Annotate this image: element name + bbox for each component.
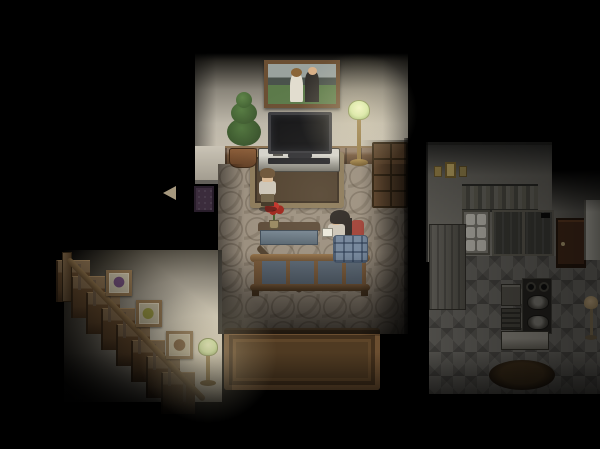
painting-woman-hair <box>291 68 302 77</box>
dish <box>466 214 475 225</box>
dvd-player-slot <box>268 158 330 164</box>
left-arrow-event-icon[interactable] <box>163 186 176 200</box>
lower-grill-cabinet <box>501 308 521 330</box>
girl-hair <box>330 210 350 224</box>
lamp-base <box>200 380 216 386</box>
wall-deco-frame <box>459 166 467 177</box>
wooden-door[interactable] <box>556 218 586 268</box>
picture-frame-teddy-bear <box>166 331 193 359</box>
plant-pot <box>229 148 257 168</box>
frame-art-teddy <box>170 335 189 355</box>
bed-leg-right <box>361 290 368 296</box>
sofa-seat <box>260 230 318 245</box>
boy-shirt <box>259 181 276 195</box>
wood-dresser <box>372 142 408 208</box>
dish <box>477 240 486 251</box>
frame-art-yellow <box>140 304 158 323</box>
cooking-pot <box>527 295 549 310</box>
white-book <box>322 228 333 237</box>
bedroom-floor-lamp <box>346 100 372 168</box>
flat-screen-tv[interactable] <box>268 112 332 154</box>
lamp-base <box>585 335 597 340</box>
door-knob <box>561 242 565 246</box>
character-boy-standing[interactable] <box>256 168 280 212</box>
frame-art-purple <box>110 274 128 292</box>
kitchen-counter <box>501 331 549 350</box>
cooking-pot <box>527 315 549 330</box>
bed-blue-panels <box>254 261 366 285</box>
picture-frame-yellow-flower <box>136 300 162 327</box>
lamp-pole <box>206 355 210 381</box>
plant-foliage-top <box>236 92 252 108</box>
tv-base <box>288 153 312 158</box>
picture-frame-purple-flower <box>106 270 132 296</box>
character-girl-reading[interactable] <box>322 206 370 264</box>
doormat <box>194 186 214 212</box>
stove-burner <box>539 282 549 292</box>
dish <box>466 227 475 238</box>
stove-with-pots <box>522 278 552 334</box>
game-viewport <box>0 0 600 449</box>
lamp-shade <box>584 296 598 309</box>
bed-bottom-rail <box>250 284 370 291</box>
boy-shadow <box>259 206 277 212</box>
large-wood-table <box>224 328 380 390</box>
round-dark-table <box>489 360 555 390</box>
lamp-shade <box>198 338 218 356</box>
tall-gray-cabinet <box>429 224 466 310</box>
kitchen-wall-decorations <box>434 162 468 182</box>
china-hutch <box>492 210 554 256</box>
painting-man-head <box>308 67 317 75</box>
hutch-top-box <box>541 213 550 218</box>
flower-vase <box>269 220 279 229</box>
dish <box>466 240 475 251</box>
bed-leg-left <box>252 290 259 296</box>
plaid-blanket <box>333 235 368 263</box>
dish-shelf <box>462 210 490 255</box>
boy-hair <box>260 168 275 178</box>
family-portrait-painting <box>264 60 340 108</box>
wall-deco-frame <box>434 166 442 177</box>
white-refrigerator <box>584 200 600 260</box>
dish <box>477 214 486 225</box>
stair-step <box>161 372 195 414</box>
painting-man-figure <box>305 71 319 102</box>
lamp-base <box>350 159 368 166</box>
lamp-pole <box>357 119 361 161</box>
kitchen-standing-lamp <box>582 296 600 352</box>
boy-shoes <box>261 202 274 206</box>
stairwell-floor-lamp <box>196 338 220 388</box>
striped-curtain <box>462 184 538 212</box>
wall-deco-clock <box>445 162 456 178</box>
sink-unit <box>501 284 521 306</box>
stove-burner <box>526 282 536 292</box>
lamp-pole <box>590 308 593 336</box>
lamp-shade <box>348 100 370 120</box>
dish <box>477 227 486 238</box>
